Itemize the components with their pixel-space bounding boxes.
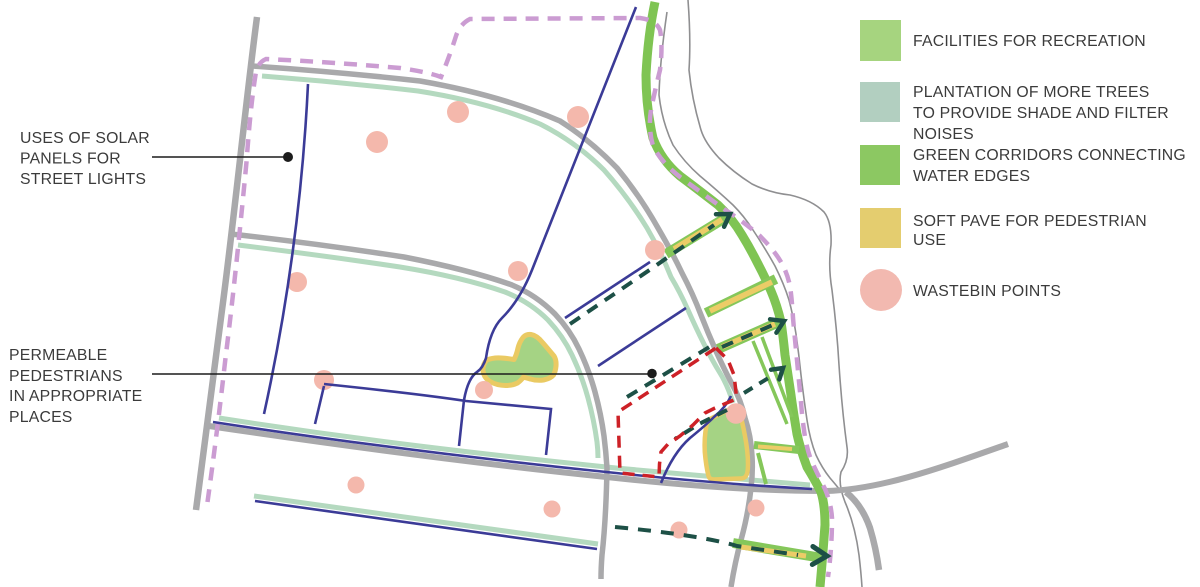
- svg-text:NOISES: NOISES: [913, 126, 974, 143]
- svg-text:PANELS FOR: PANELS FOR: [20, 151, 121, 168]
- svg-text:TO PROVIDE SHADE AND FILTER: TO PROVIDE SHADE AND FILTER: [913, 105, 1169, 122]
- svg-text:SOFT PAVE FOR PEDESTRIAN: SOFT PAVE FOR PEDESTRIAN: [913, 213, 1147, 230]
- svg-text:USE: USE: [913, 232, 946, 249]
- svg-text:WASTEBIN POINTS: WASTEBIN POINTS: [913, 283, 1061, 300]
- svg-text:PLANTATION OF MORE TREES: PLANTATION OF MORE TREES: [913, 84, 1150, 101]
- svg-text:WATER EDGES: WATER EDGES: [913, 168, 1030, 185]
- svg-text:PERMEABLE: PERMEABLE: [9, 347, 107, 364]
- svg-text:PLACES: PLACES: [9, 409, 73, 426]
- svg-text:GREEN CORRIDORS CONNECTING: GREEN CORRIDORS CONNECTING: [913, 147, 1186, 164]
- svg-text:IN APPROPRIATE: IN APPROPRIATE: [9, 388, 142, 405]
- svg-text:PEDESTRIANS: PEDESTRIANS: [9, 368, 123, 385]
- svg-text:FACILITIES FOR RECREATION: FACILITIES FOR RECREATION: [913, 33, 1146, 50]
- svg-text:USES OF SOLAR: USES OF SOLAR: [20, 130, 150, 147]
- svg-text:STREET LIGHTS: STREET LIGHTS: [20, 171, 146, 188]
